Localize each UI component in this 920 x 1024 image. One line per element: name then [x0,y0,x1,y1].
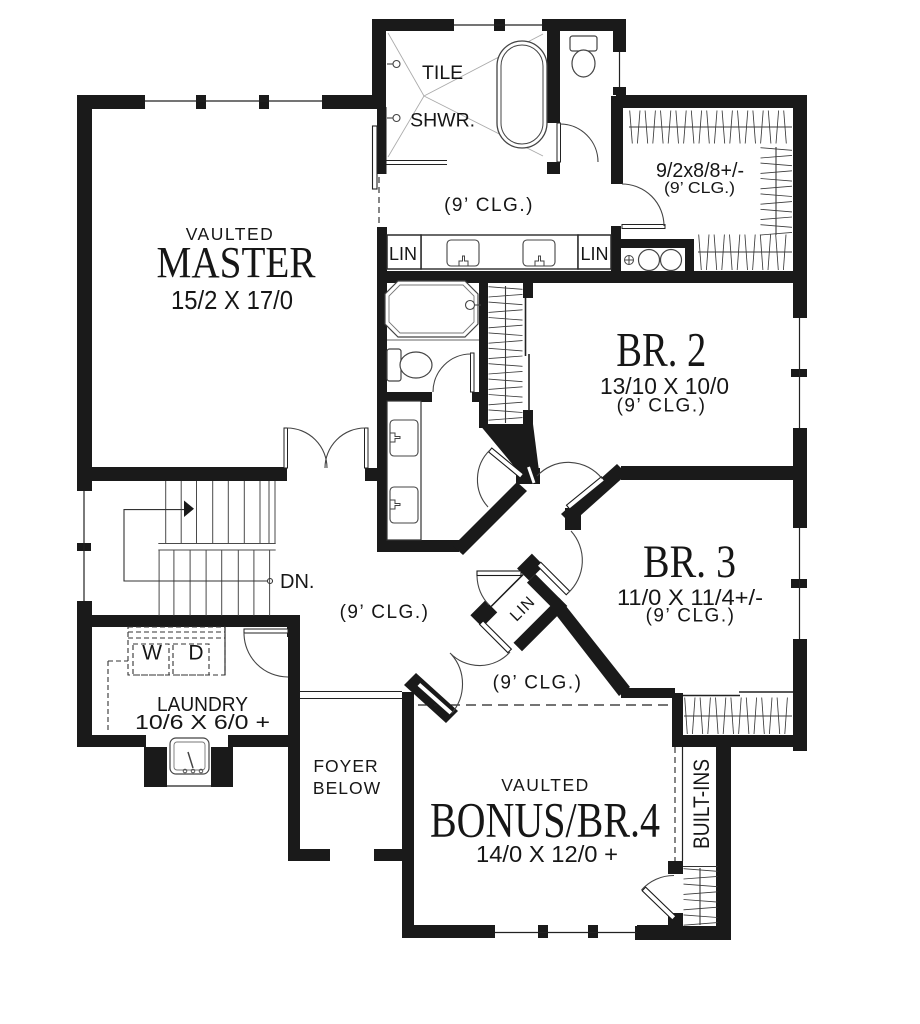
svg-text:LIN: LIN [580,244,608,264]
svg-text:(9’ CLG.): (9’ CLG.) [493,673,583,694]
svg-text:TILE: TILE [422,62,463,84]
svg-text:(9’ CLG.): (9’ CLG.) [646,606,736,627]
svg-text:(9’ CLG.): (9’ CLG.) [664,180,735,197]
svg-text:MASTER: MASTER [157,238,317,287]
svg-text:DN.: DN. [280,571,314,593]
svg-text:FOYER: FOYER [313,756,378,776]
svg-text:(9’ CLG.): (9’ CLG.) [617,396,707,417]
svg-text:9/2x8/8+/-: 9/2x8/8+/- [656,159,744,182]
svg-text:10/6 X 6/0 +: 10/6 X 6/0 + [135,711,270,734]
svg-text:BONUS/BR.4: BONUS/BR.4 [430,792,660,848]
svg-text:15/2 X 17/0: 15/2 X 17/0 [171,287,293,315]
svg-text:BR. 3: BR. 3 [643,536,736,588]
svg-text:D: D [188,642,203,665]
svg-text:LIN: LIN [389,244,417,264]
svg-text:BR. 2: BR. 2 [616,322,706,377]
svg-text:W: W [142,642,162,665]
svg-text:14/0 X 12/0 +: 14/0 X 12/0 + [476,841,618,867]
svg-text:BELOW: BELOW [313,778,381,798]
svg-text:(9’ CLG.): (9’ CLG.) [444,195,534,216]
svg-text:SHWR.: SHWR. [410,110,475,132]
svg-text:BUILT-INS: BUILT-INS [689,759,714,849]
svg-text:(9’ CLG.): (9’ CLG.) [340,602,430,623]
